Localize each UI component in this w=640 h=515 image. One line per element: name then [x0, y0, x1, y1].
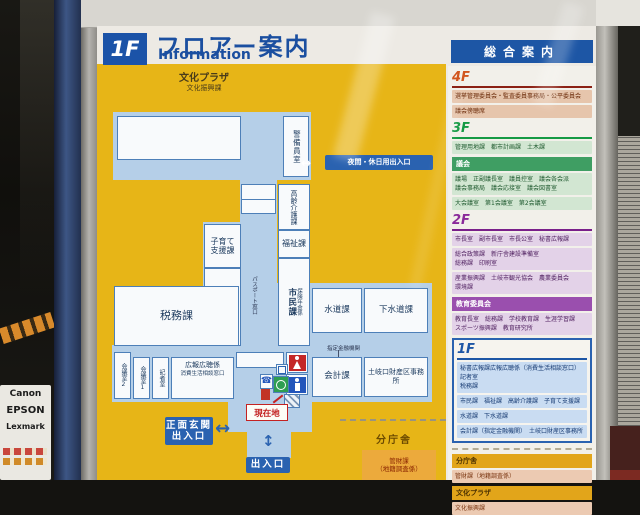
room-welfare: 福祉課 [278, 230, 310, 258]
room-sewer-division: 下水道課 [364, 288, 428, 333]
annex-title: 分庁舎 [376, 431, 412, 446]
floor-label-1f: 1F [457, 342, 587, 360]
annex-header: 分庁舎 [452, 454, 592, 468]
room-tax-division: 税務課 [114, 286, 239, 346]
directory-section-1f: 1F 秘書広報課広報広聴係（消費生活相談窓口） 記者室 税務課 市民課 福祉課 … [452, 338, 592, 443]
directory-section-education: 教育委員会 教育長室 総務課 学校教育課 生涯学習課 スポーツ振興課 教育研究所 [452, 297, 592, 335]
main-entrance-line1: 正面玄関 [166, 420, 212, 431]
education-header: 教育委員会 [452, 297, 592, 311]
background-right [618, 26, 640, 136]
phone-cell: ☎ [260, 374, 273, 389]
poster-red [610, 426, 640, 480]
room-tokiguchi-office: 土岐口財産区事務所 [364, 357, 428, 397]
directory-row: 選挙管理委員会・監査委員事務局・公平委員会 [452, 90, 592, 103]
directory-row: 議場 正副議長室 議員控室 議会各会派 議会事務局 議会応接室 議会図書室 [452, 173, 592, 195]
printer-cartridge-box: Canon EPSON Lexmark [0, 385, 51, 480]
plaza-name: 文化プラザ [148, 69, 260, 84]
room-child-support: 子育て支援課 [204, 224, 241, 268]
room-accounting: 会計課 [312, 357, 362, 397]
restroom-female-cell [286, 352, 308, 373]
annex-dept-line2: （地籍調査係） [376, 465, 422, 473]
directory-row: 秘書広報課広報広聴係（消費生活相談窓口） 記者室 税務課 [457, 362, 587, 393]
directory-row: 文化振興課 [452, 502, 592, 515]
small-rooms-spine [241, 184, 276, 214]
floor-label-3f: 3F [452, 121, 592, 139]
directory-row: 市長室 副市長室 市長公室 秘書広報課 [452, 233, 592, 246]
box-color-stripe [3, 458, 47, 465]
main-entrance-arrow-icon: ↔ [215, 418, 230, 439]
canon-logo: Canon [2, 389, 49, 399]
annex-dept-box: 管財課 （地籍調査係） [362, 450, 436, 480]
plaza-header: 文化プラザ [452, 486, 592, 500]
epson-logo: EPSON [2, 405, 49, 416]
directory-section-3f: 3F 管理用地課 都市計画課 土木課 [452, 121, 592, 154]
fire-extinguisher-icon [261, 389, 270, 400]
directory-row: 市民課 福祉課 高齢介護課 子育て支援課 [457, 395, 587, 408]
directory-row: 総合政策課 新庁舎建設準備室 総務課 印刷室 [452, 248, 592, 270]
directory-title: 総合案内 [451, 40, 593, 63]
night-entrance-label: 夜間・休日用出入口 [325, 155, 433, 170]
panel-dashed-divider [452, 448, 592, 450]
directory-row: 管財課（地籍調査係） [452, 470, 592, 483]
directory-section-council: 議会 議場 正副議長室 議員控室 議会各会派 議会事務局 議会応接室 議会図書室… [452, 157, 592, 210]
room-press: 記者室 [152, 357, 169, 399]
phone-icon: ☎ [261, 376, 272, 386]
room-elderly-care: 高齢介護課 [278, 184, 310, 230]
plaza-dept: 文化振興課 [148, 83, 260, 93]
directory-row: 大会議室 第1会議室 第2会議室 [452, 197, 592, 210]
box-color-stripe [3, 448, 47, 455]
directory-row: 水道課 下水道課 [457, 410, 587, 423]
board-frame-left [81, 0, 97, 480]
council-header: 議会 [452, 157, 592, 171]
room-meeting2: 会議室2 [114, 352, 131, 399]
main-entrance-label: 正面玄関 出入口 [165, 417, 213, 445]
room-insurance-pension-label: 保険年金係 [296, 288, 302, 316]
passport-counter-note: パスポート窓口 [250, 276, 258, 332]
south-entrance-arrow-icon: ↕ [262, 432, 275, 450]
female-restroom-icon [289, 355, 306, 371]
room-water-division: 水道課 [312, 288, 362, 333]
night-entrance-arrow-icon: ↔ [301, 156, 311, 170]
directory-section-plaza: 文化プラザ 文化振興課 [452, 486, 592, 515]
board-frame-right [596, 26, 618, 480]
room-meeting1: 会議室1 [133, 357, 150, 399]
page-title-en: Information [158, 47, 251, 63]
board-left-pole [54, 0, 81, 480]
board-frame-top [81, 0, 600, 28]
pr-section-label: 広報広聴係 [185, 361, 220, 369]
directory-section-4f: 4F 選挙管理委員会・監査委員事務局・公平委員会 議会傍聴席 [452, 70, 592, 118]
elevator-icon [278, 366, 286, 374]
doorway-reflection [20, 0, 56, 300]
south-entrance-label: 出入口 [246, 457, 290, 473]
directory-row: 会計課（指定金融機関） 土岐口財産区事務所 [457, 425, 587, 438]
small-rooms-block [117, 116, 241, 160]
designated-bank-note: 指定金融機関 [327, 344, 360, 352]
elevator-cell [276, 364, 288, 375]
note-connector-line [338, 350, 339, 357]
directory-row: 管理用地課 都市計画課 土木課 [452, 141, 592, 154]
directory-panel: 4F 選挙管理委員会・監査委員事務局・公平委員会 議会傍聴席 3F 管理用地課 … [448, 66, 596, 480]
restroom-male-cell [286, 374, 308, 395]
main-entrance-line2: 出入口 [172, 431, 207, 442]
floor-label-4f: 4F [452, 70, 592, 88]
room-citizen-division2: 市民課 保険年金係 [278, 258, 310, 346]
directory-section-annex: 分庁舎 管財課（地籍調査係） [452, 454, 592, 483]
directory-row: 教育長室 総務課 学校教育課 生涯学習課 スポーツ振興課 教育研究所 [452, 313, 592, 335]
annex-boundary-dashes [340, 419, 446, 421]
floor-label-2f: 2F [452, 213, 592, 231]
room-citizen2-label: 市民課 [286, 288, 296, 317]
poster-small-text [618, 136, 640, 426]
room-pr-section: 広報広聴係 消費生活相談窓口 [171, 357, 234, 399]
directory-row: 議会傍聴席 [452, 105, 592, 118]
annex-dept-line1: 管財課 [389, 457, 409, 465]
directory-row: 産業振興課 土岐市観光協会 農業委員会 環境課 [452, 272, 592, 294]
current-location-label: 現在地 [246, 404, 288, 421]
consumer-counter-label: 消費生活相談窓口 [180, 371, 224, 377]
male-restroom-icon [289, 377, 306, 393]
wall-top-right [596, 0, 640, 28]
wheelchair-icon [273, 376, 289, 393]
lexmark-logo: Lexmark [2, 422, 49, 431]
directory-section-2f: 2F 市長室 副市長室 市長公室 秘書広報課 総合政策課 新庁舎建設準備室 総務… [452, 213, 592, 294]
floor-badge: 1F [103, 33, 147, 65]
